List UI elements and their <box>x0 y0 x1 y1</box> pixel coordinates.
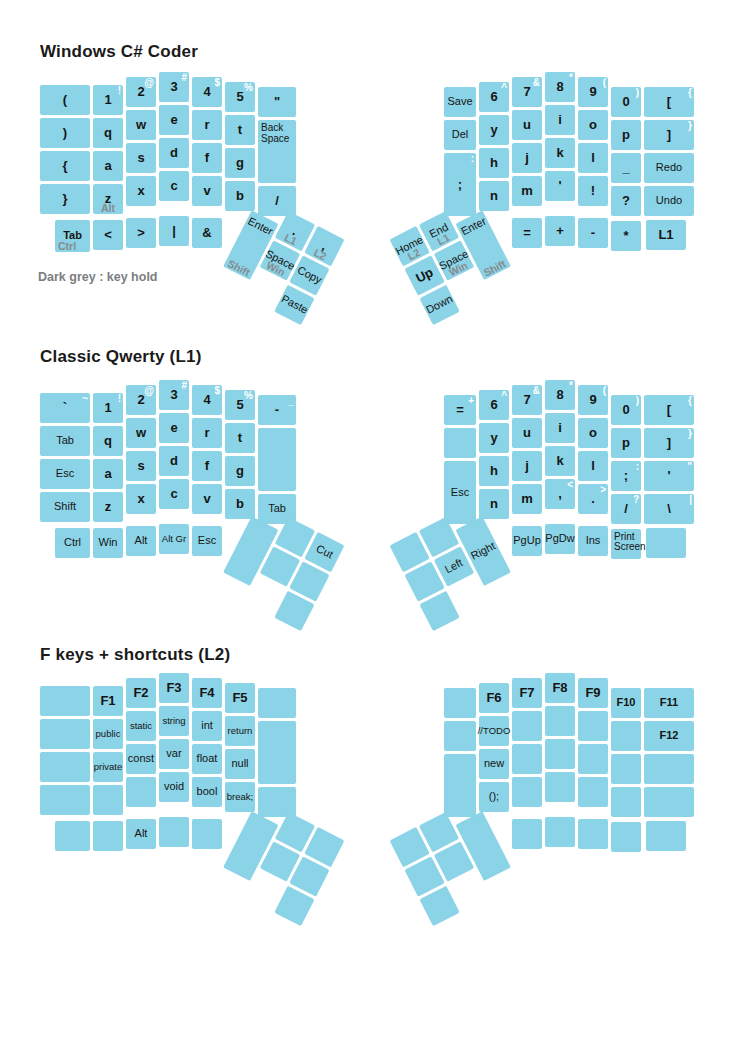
key-tab: TabCtrl <box>55 220 90 252</box>
key-shift-label: $ <box>214 77 220 88</box>
key-d: d <box>159 138 189 168</box>
key-x: x <box>126 176 156 206</box>
key-main-label: d <box>159 446 189 476</box>
key-shift-label: | <box>689 494 692 505</box>
key-public: public <box>93 719 123 749</box>
key-main-label: null <box>225 749 255 779</box>
key-main-label: q <box>93 426 123 456</box>
key-symbol: [{ <box>644 395 694 425</box>
key-f4: F4 <box>192 678 222 708</box>
key-main-label: h <box>479 456 509 486</box>
key-f9: F9 <box>578 678 608 708</box>
key-shift-label: _ <box>288 395 294 406</box>
key-main-label: \ <box>644 494 694 524</box>
key-main-label: b <box>225 181 255 211</box>
key-main-label: t <box>225 115 255 145</box>
key-blank <box>40 686 90 716</box>
key-blank <box>258 688 296 718</box>
key-var: var <box>159 739 189 769</box>
key-main-label: void <box>159 772 189 802</box>
key-return: return <box>225 716 255 746</box>
key-static: static <box>126 711 156 741</box>
key-shift-label: ! <box>118 393 121 404</box>
key-main-label: _ <box>611 153 641 183</box>
key-main-label: p <box>611 428 641 458</box>
key-main-label: [ <box>644 87 694 117</box>
key-f11: F11 <box>644 688 694 718</box>
key-pgup: PgUp <box>512 526 542 556</box>
key-main-label: F3 <box>159 673 189 703</box>
key-main-label: return <box>225 716 255 746</box>
key-f1: F1 <box>93 686 123 716</box>
key-4: 4$ <box>192 77 222 107</box>
layer-title-classic-qwerty: Classic Qwerty (L1) <box>40 347 202 367</box>
key-main-label: s <box>126 143 156 173</box>
key-blank <box>578 744 608 774</box>
key-main-label: a <box>93 459 123 489</box>
key-symbol: " <box>258 87 296 117</box>
key-main-label: ? <box>611 186 641 216</box>
key-symbol: * <box>611 221 641 251</box>
key-main-label: e <box>159 413 189 443</box>
key-2: 2@ <box>126 385 156 415</box>
key-main-label: l <box>578 143 608 173</box>
key-shift-label: % <box>244 82 253 93</box>
key-main-label: c <box>159 171 189 201</box>
key-symbol: ]} <box>644 120 694 150</box>
key-main-label: bool <box>192 777 222 807</box>
key-symbol: ) <box>40 118 90 148</box>
key-f: f <box>192 451 222 481</box>
key-main-label: = <box>512 218 542 248</box>
key-main-label: F1 <box>93 686 123 716</box>
key-main-label: w <box>126 418 156 448</box>
key-m: m <box>512 484 542 514</box>
key-f8: F8 <box>545 673 575 703</box>
key-shift-label: ( <box>603 385 606 396</box>
key-main-label: ! <box>578 176 608 206</box>
key-main-label: + <box>545 216 575 246</box>
key-shift-label: { <box>688 395 692 406</box>
key-symbol: \| <box>644 494 694 524</box>
key-main-label: Ctrl <box>55 528 90 558</box>
layer-title-windows-csharp-coder: Windows C# Coder <box>40 42 198 62</box>
key-blank <box>578 819 608 849</box>
key-main-label: o <box>578 418 608 448</box>
key-1: 1! <box>93 85 123 115</box>
key-v: v <box>192 176 222 206</box>
key-j: j <box>512 143 542 173</box>
key-hold-note: Dark grey : key hold <box>38 270 158 284</box>
key-shift-label: > <box>600 484 606 495</box>
key-main-label: x <box>126 484 156 514</box>
key-main-label: z <box>93 492 123 522</box>
key-main-label: Redo <box>644 153 694 183</box>
key-f5: F5 <box>225 683 255 713</box>
key-symbol: -_ <box>258 395 296 425</box>
key-blank <box>93 821 123 851</box>
key-ins: Ins <box>578 526 608 556</box>
key-l1: L1 <box>646 220 686 250</box>
key-n: n <box>479 489 509 519</box>
key-main-label: r <box>192 418 222 448</box>
key-main-label: n <box>479 489 509 519</box>
key-7: 7& <box>512 385 542 415</box>
key-f3: F3 <box>159 673 189 703</box>
key-1: 1! <box>93 393 123 423</box>
key-shift-label: # <box>181 72 187 83</box>
key-shift-label: < <box>567 479 573 490</box>
key-blank <box>126 777 156 807</box>
layer3-right-thumb-cluster <box>389 797 527 944</box>
key-main-label: g <box>225 456 255 486</box>
key-main-label: f <box>192 143 222 173</box>
key-blank <box>512 777 542 807</box>
key-float: float <box>192 744 222 774</box>
key-9: 9( <box>578 77 608 107</box>
key-main-label: b <box>225 489 255 519</box>
key-symbol: ! <box>578 176 608 206</box>
key-blank <box>40 785 90 815</box>
key-blank <box>545 706 575 736</box>
key-blank <box>578 711 608 741</box>
keyboard-layout-diagram: Windows C# Coder Dark grey : key hold ()… <box>0 0 736 1041</box>
key-shift-label: % <box>244 390 253 401</box>
layer1-right-thumb-cluster: HomeL2EndL1UpSpaceWinEnterShiftDown <box>389 196 527 343</box>
key-hold-label: Ctrl <box>55 240 90 252</box>
key-main-label: { <box>40 151 90 181</box>
key-blank <box>93 785 123 815</box>
key-win: Win <box>93 528 123 558</box>
key-main-label: Win <box>93 528 123 558</box>
key-o: o <box>578 110 608 140</box>
key-bool: bool <box>192 777 222 807</box>
key-shift-label: ) <box>636 87 639 98</box>
key-alt: Alt <box>126 819 156 849</box>
key-main-label: Alt <box>126 526 156 556</box>
key-p: p <box>611 428 641 458</box>
key-symbol: < <box>93 220 123 250</box>
key-k: k <box>545 446 575 476</box>
key-symbol: ( <box>40 85 90 115</box>
key-blank <box>40 719 90 749</box>
key-blank <box>512 711 542 741</box>
key-main-label: i <box>545 413 575 443</box>
key-w: w <box>126 418 156 448</box>
key-n: n <box>479 181 509 211</box>
key-blank <box>512 819 542 849</box>
key-main-label: " <box>258 87 296 117</box>
key-0: 0) <box>611 87 641 117</box>
key-main-label: Shift <box>40 492 90 522</box>
key-x: x <box>126 484 156 514</box>
key-blank <box>258 428 296 491</box>
key-blank <box>545 772 575 802</box>
key-2: 2@ <box>126 77 156 107</box>
key-main-label: < <box>93 220 123 250</box>
key-main-label: n <box>479 181 509 211</box>
key-shift-label: & <box>533 385 540 396</box>
key-blank <box>611 787 641 817</box>
key-r: r <box>192 418 222 448</box>
key-blank <box>444 688 476 718</box>
key-main-label: ] <box>644 120 694 150</box>
key-shift-label: ^ <box>501 390 507 401</box>
layer3-left-thumb-cluster <box>206 797 344 944</box>
key-main-label: F12 <box>644 721 694 751</box>
key-main-label: m <box>512 484 542 514</box>
key-main-label: static <box>126 711 156 741</box>
key-symbol: ,< <box>545 479 575 509</box>
key-blank <box>545 739 575 769</box>
key-main-label: d <box>159 138 189 168</box>
key-main-label: ) <box>40 118 90 148</box>
key-esc: Esc <box>40 459 90 489</box>
key-shift-label: + <box>468 395 474 406</box>
key-symbol: =+ <box>444 395 476 425</box>
key-o: o <box>578 418 608 448</box>
key-shift-label: : <box>636 461 639 472</box>
key-symbol: > <box>126 218 156 248</box>
key-shift-label: : <box>471 153 474 164</box>
key-g: g <box>225 456 255 486</box>
key-main-label: w <box>126 110 156 140</box>
key-save: Save <box>444 87 476 117</box>
key-alt: Alt <box>126 526 156 556</box>
key-symbol: _ <box>611 153 641 183</box>
key-back-space: Back Space <box>258 120 296 183</box>
key-undo: Undo <box>644 186 694 216</box>
layer2-right-thumb-cluster: LeftRight <box>389 502 527 649</box>
key-main-label: ( <box>40 85 90 115</box>
key-main-label: F4 <box>192 678 222 708</box>
key-symbol: { <box>40 151 90 181</box>
key-redo: Redo <box>644 153 694 183</box>
key-main-label: Undo <box>644 186 694 216</box>
key-b: b <box>225 489 255 519</box>
key-f2: F2 <box>126 678 156 708</box>
key-blank <box>578 777 608 807</box>
key-symbol: /? <box>611 494 641 524</box>
key-esc: Esc <box>192 526 222 556</box>
key-main-label: h <box>479 148 509 178</box>
key-const: const <box>126 744 156 774</box>
key-main-label: F9 <box>578 678 608 708</box>
key-shift-label: * <box>569 72 573 83</box>
key-5: 5% <box>225 390 255 420</box>
key-pgdw: PgDw <box>545 524 575 554</box>
key-main-label: r <box>192 110 222 140</box>
key-k: k <box>545 138 575 168</box>
key-main-label: L1 <box>646 220 686 250</box>
key-main-label: } <box>40 184 90 214</box>
key-symbol: + <box>545 216 575 246</box>
key-blank <box>646 528 686 558</box>
key-main-label: s <box>126 451 156 481</box>
key-e: e <box>159 413 189 443</box>
key-main-label: const <box>126 744 156 774</box>
key-main-label: F7 <box>512 678 542 708</box>
key-h: h <box>479 148 509 178</box>
key-main-label: k <box>545 138 575 168</box>
key-symbol: } <box>40 184 90 214</box>
key-main-label: o <box>578 110 608 140</box>
layer-title-fkeys-shortcuts: F keys + shortcuts (L2) <box>40 645 230 665</box>
key-new: new <box>479 749 509 779</box>
key-symbol: & <box>192 218 222 248</box>
key-main-label: e <box>159 105 189 135</box>
key-main-label: //TODO <box>479 716 509 746</box>
key-main-label: g <box>225 148 255 178</box>
key-symbol: .> <box>578 484 608 514</box>
key-main-label: > <box>126 218 156 248</box>
key-main-label: x <box>126 176 156 206</box>
key-8: 8* <box>545 72 575 102</box>
key-main-label: break; <box>225 782 255 812</box>
key-main-label: ' <box>545 171 575 201</box>
key-shift-label: ^ <box>501 82 507 93</box>
key-shift-label: $ <box>214 385 220 396</box>
key-symbol: (); <box>479 782 509 812</box>
key-q: q <box>93 118 123 148</box>
key-y: y <box>479 423 509 453</box>
key-blank <box>258 721 296 784</box>
key-main-label: p <box>611 120 641 150</box>
key-y: y <box>479 115 509 145</box>
key-s: s <box>126 451 156 481</box>
key-tab: Tab <box>40 426 90 456</box>
key-f10: F10 <box>611 688 641 718</box>
key-main-label: Alt <box>126 819 156 849</box>
key-main-label: F6 <box>479 683 509 713</box>
key-print-screen: Print Screen <box>611 529 641 559</box>
key-alt-gr: Alt Gr <box>159 524 189 554</box>
key-main-label: float <box>192 744 222 774</box>
key-main-label: m <box>512 176 542 206</box>
key-m: m <box>512 176 542 206</box>
key-main-label: PgDw <box>545 524 575 554</box>
key-w: w <box>126 110 156 140</box>
key-shift-label: " <box>687 461 692 472</box>
key-shift: Shift <box>40 492 90 522</box>
key-symbol: | <box>159 216 189 246</box>
key-shift-label: # <box>181 380 187 391</box>
key-main-label: F2 <box>126 678 156 708</box>
key-main-label: l <box>578 451 608 481</box>
key-a: a <box>93 151 123 181</box>
key-symbol: '" <box>644 461 694 491</box>
key-blank <box>55 821 90 851</box>
key-main-label: | <box>159 216 189 246</box>
key-symbol: = <box>512 218 542 248</box>
key-symbol: `~ <box>40 393 90 423</box>
key-6: 6^ <box>479 82 509 112</box>
key-shift-label: { <box>688 87 692 98</box>
key-d: d <box>159 446 189 476</box>
key-f7: F7 <box>512 678 542 708</box>
key-3: 3# <box>159 72 189 102</box>
key-l: l <box>578 451 608 481</box>
key-shift-label: * <box>569 380 573 391</box>
key-blank <box>40 752 90 782</box>
key-symbol: ;: <box>611 461 641 491</box>
key-symbol: ? <box>611 186 641 216</box>
key-private: private <box>93 752 123 782</box>
key-shift-label: } <box>688 120 692 131</box>
key-main-label: u <box>512 418 542 448</box>
layer2-left-thumb-cluster: Cut <box>206 502 344 649</box>
key-blank <box>512 744 542 774</box>
key-symbol: ' <box>545 171 575 201</box>
key-main-label: new <box>479 749 509 779</box>
key-3: 3# <box>159 380 189 410</box>
key-void: void <box>159 772 189 802</box>
key-main-label: - <box>578 218 608 248</box>
key-e: e <box>159 105 189 135</box>
key-int: int <box>192 711 222 741</box>
key-blank <box>611 754 641 784</box>
key-main-label: Tab <box>40 426 90 456</box>
key-shift-label: ! <box>118 85 121 96</box>
key-shift-label: ~ <box>82 393 88 404</box>
key-main-label: * <box>611 221 641 251</box>
key-main-label: u <box>512 110 542 140</box>
key-blank <box>444 428 476 458</box>
key-blank <box>611 721 641 751</box>
key-shift-label: ( <box>603 77 606 88</box>
key-v: v <box>192 484 222 514</box>
key-f6: F6 <box>479 683 509 713</box>
key-main-label: & <box>192 218 222 248</box>
key-main-label: v <box>192 484 222 514</box>
key-shift-label: ? <box>633 494 639 505</box>
key-blank <box>159 817 189 847</box>
key-i: i <box>545 413 575 443</box>
key-z: zAlt <box>93 184 123 214</box>
key-del: Del <box>444 120 476 150</box>
key-s: s <box>126 143 156 173</box>
key-main-label: public <box>93 719 123 749</box>
key-i: i <box>545 105 575 135</box>
key-9: 9( <box>578 385 608 415</box>
key-main-label: private <box>93 752 123 782</box>
key-main-label: i <box>545 105 575 135</box>
key-t: t <box>225 423 255 453</box>
key-g: g <box>225 148 255 178</box>
key-main-label: F11 <box>644 688 694 718</box>
key-7: 7& <box>512 77 542 107</box>
key-c: c <box>159 171 189 201</box>
key-c: c <box>159 479 189 509</box>
key-blank <box>644 754 694 784</box>
key-main-label: Save <box>444 87 476 117</box>
key-main-label: j <box>512 143 542 173</box>
key-b: b <box>225 181 255 211</box>
key-main-label: ] <box>644 428 694 458</box>
key-t: t <box>225 115 255 145</box>
key-main-label: (); <box>479 782 509 812</box>
key-a: a <box>93 459 123 489</box>
key-symbol: - <box>578 218 608 248</box>
key-main-label: q <box>93 118 123 148</box>
key-main-label: int <box>192 711 222 741</box>
key-shift-label: } <box>688 428 692 439</box>
key-main-label: t <box>225 423 255 453</box>
key-u: u <box>512 110 542 140</box>
key-p: p <box>611 120 641 150</box>
key-f: f <box>192 143 222 173</box>
key-8: 8* <box>545 380 575 410</box>
